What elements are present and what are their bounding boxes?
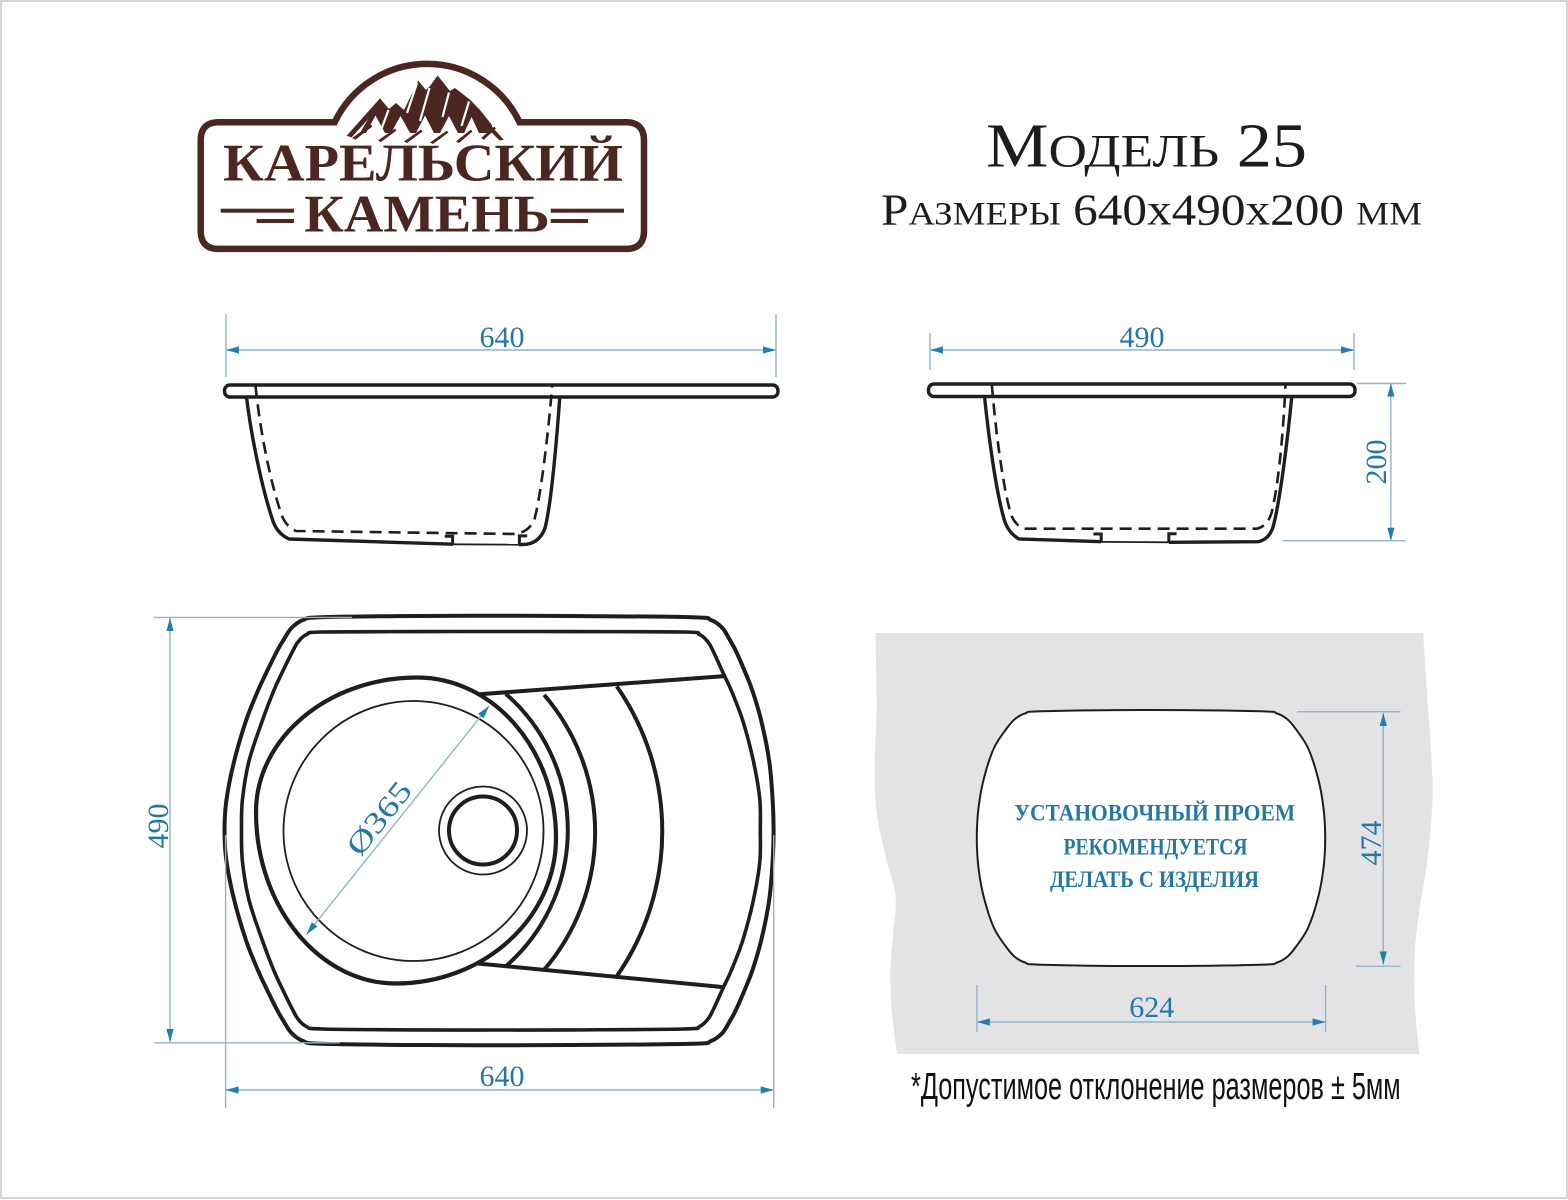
svg-text:УСТАНОВОЧНЫЙ ПРОЕМ: УСТАНОВОЧНЫЙ ПРОЕМ <box>1014 801 1295 826</box>
svg-text:КАРЕЛЬСКИЙ: КАРЕЛЬСКИЙ <box>223 134 623 192</box>
svg-text:200: 200 <box>1360 440 1393 485</box>
svg-text:624: 624 <box>1129 991 1174 1024</box>
svg-text:640: 640 <box>480 321 525 354</box>
svg-text:РАЗМЕРЫ 640х490х200 ММ: РАЗМЕРЫ 640х490х200 ММ <box>881 185 1422 234</box>
svg-text:Ø365: Ø365 <box>340 775 419 862</box>
svg-text:КАМЕНЬ: КАМЕНЬ <box>304 185 550 243</box>
svg-text:РЕКОМЕНДУЕТСЯ: РЕКОМЕНДУЕТСЯ <box>1064 834 1248 859</box>
svg-text:*Допустимое отклонение размеро: *Допустимое отклонение размеров ± 5мм <box>911 1066 1401 1108</box>
svg-text:490: 490 <box>1120 321 1165 354</box>
svg-text:МОДЕЛЬ 25: МОДЕЛЬ 25 <box>986 112 1307 180</box>
svg-text:474: 474 <box>1355 821 1388 866</box>
svg-text:ДЕЛАТЬ С ИЗДЕЛИЯ: ДЕЛАТЬ С ИЗДЕЛИЯ <box>1050 867 1259 892</box>
svg-text:490: 490 <box>142 804 175 849</box>
svg-text:640: 640 <box>480 1060 525 1093</box>
